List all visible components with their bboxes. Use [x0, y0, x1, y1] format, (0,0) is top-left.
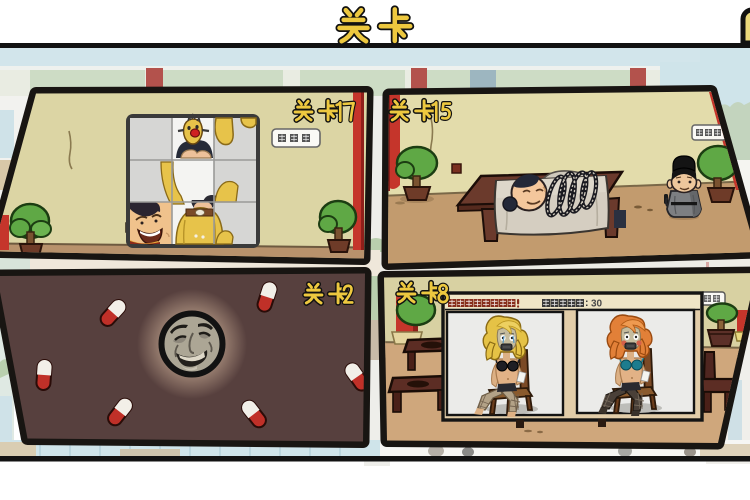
- svg-text:30: 30: [591, 299, 603, 310]
